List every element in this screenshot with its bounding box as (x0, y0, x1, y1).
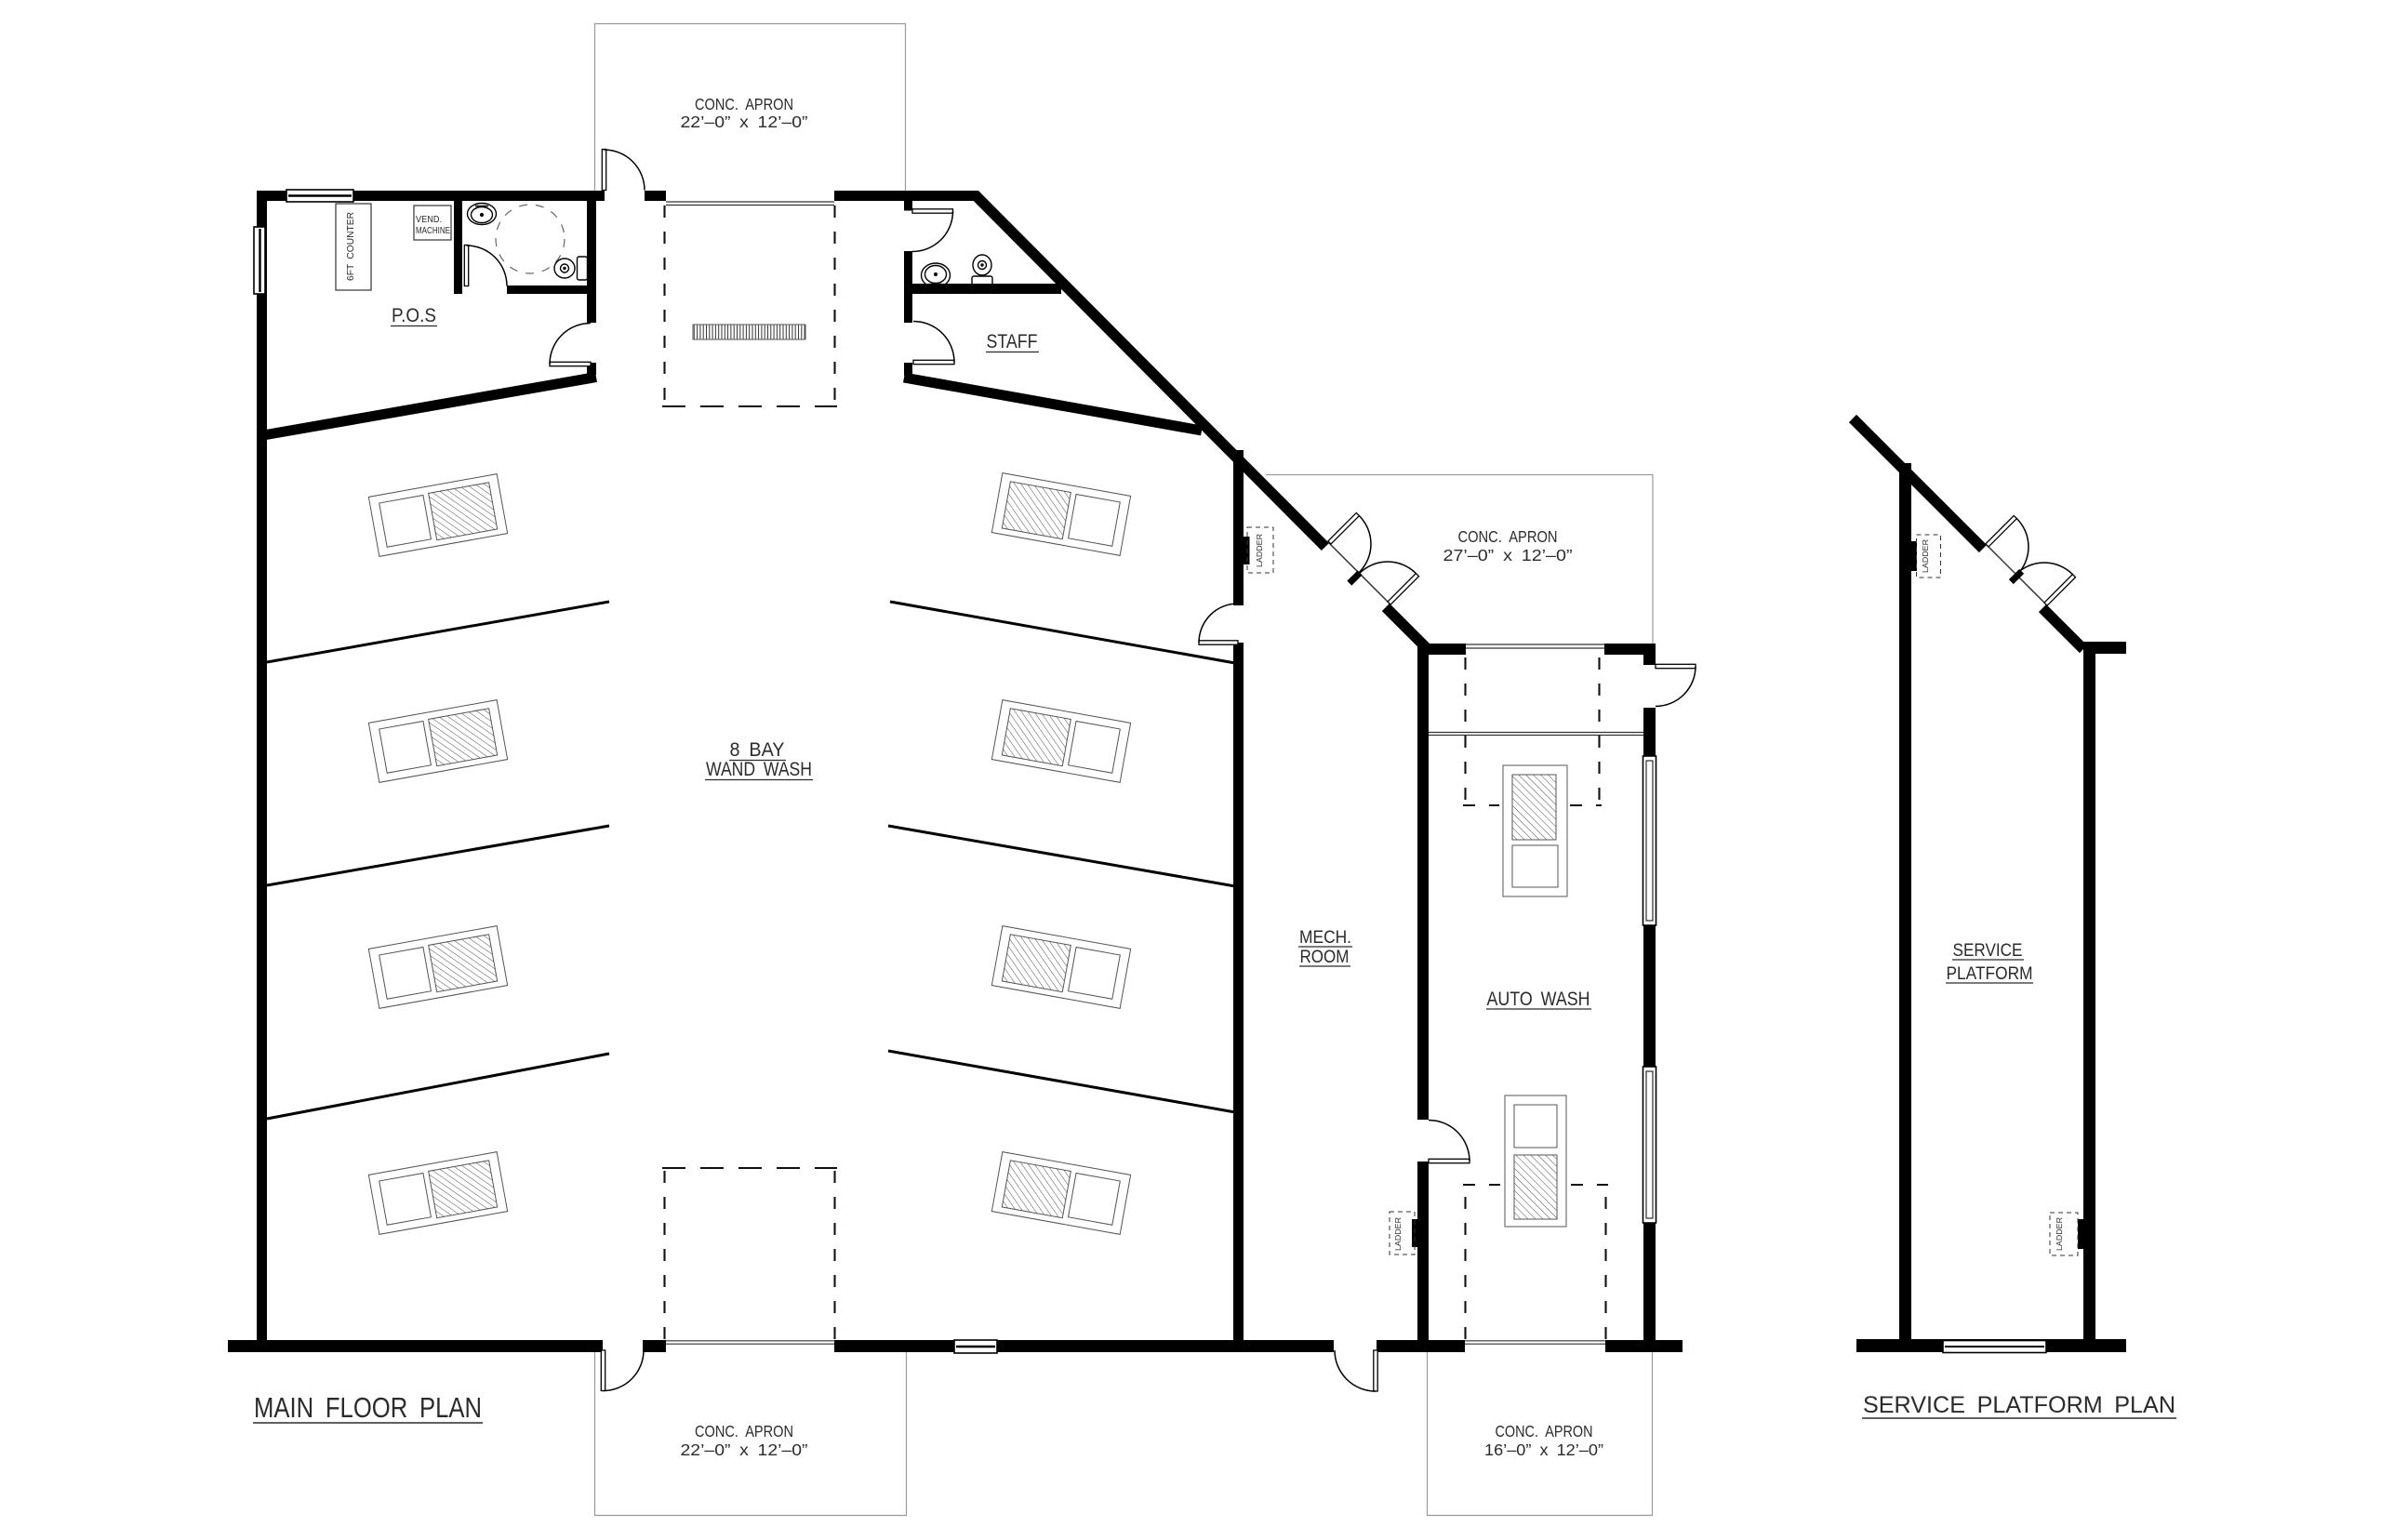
svg-text:6FT COUNTER: 6FT COUNTER (345, 212, 356, 281)
svg-text:8 BAY: 8 BAY (730, 739, 785, 761)
svg-text:CONC. APRON: CONC. APRON (695, 95, 793, 113)
svg-text:SERVICE: SERVICE (1953, 941, 2023, 961)
svg-text:27’–0” x 12’–0”: 27’–0” x 12’–0” (1443, 546, 1573, 564)
svg-text:ROOM: ROOM (1300, 948, 1350, 967)
svg-text:LADDER: LADDER (1255, 534, 1264, 567)
svg-text:PLATFORM: PLATFORM (1947, 964, 2033, 984)
svg-text:SERVICE PLATFORM PLAN: SERVICE PLATFORM PLAN (1863, 1392, 2175, 1418)
svg-text:MAIN FLOOR PLAN: MAIN FLOOR PLAN (254, 1391, 482, 1424)
svg-text:CONC. APRON: CONC. APRON (1496, 1422, 1593, 1440)
svg-text:LADDER: LADDER (2055, 1217, 2064, 1251)
svg-text:STAFF: STAFF (987, 331, 1038, 352)
svg-text:MECH.: MECH. (1299, 928, 1351, 948)
svg-text:AUTO WASH: AUTO WASH (1487, 989, 1590, 1010)
svg-text:22’–0” x 12’–0”: 22’–0” x 12’–0” (681, 113, 808, 131)
svg-text:VEND.: VEND. (416, 215, 442, 225)
svg-text:WAND WASH: WAND WASH (706, 759, 812, 780)
svg-text:16’–0” x 12’–0”: 16’–0” x 12’–0” (1484, 1440, 1603, 1459)
svg-text:P.O.S: P.O.S (392, 305, 436, 326)
svg-text:MACHINE: MACHINE (416, 226, 450, 236)
svg-text:CONC. APRON: CONC. APRON (1458, 527, 1558, 546)
svg-text:22’–0” x 12’–0”: 22’–0” x 12’–0” (681, 1440, 808, 1459)
svg-text:LADDER: LADDER (1393, 1217, 1403, 1251)
svg-text:LADDER: LADDER (1921, 539, 1930, 573)
svg-text:CONC. APRON: CONC. APRON (695, 1422, 793, 1440)
